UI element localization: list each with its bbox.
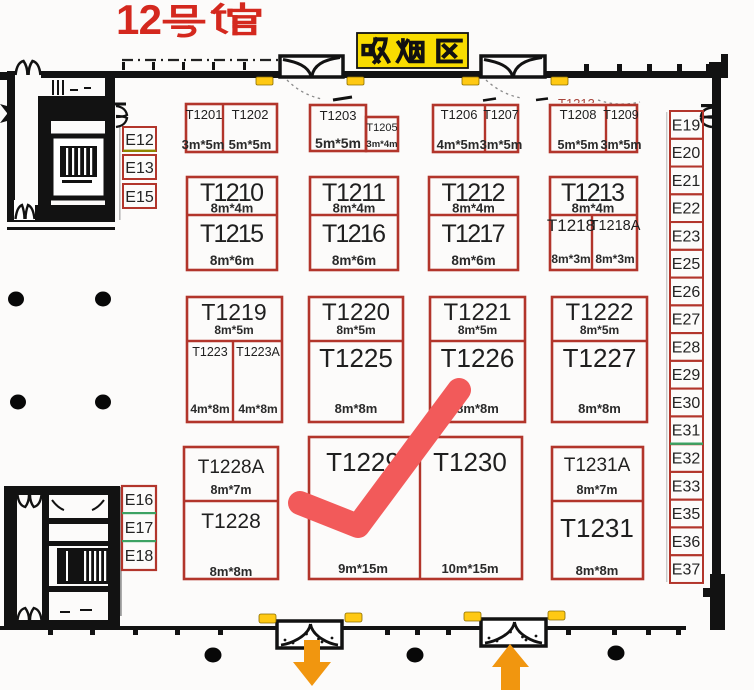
svg-text:8m*5m: 8m*5m — [214, 323, 253, 337]
svg-text:E28: E28 — [672, 340, 701, 357]
svg-text:T1228A: T1228A — [198, 457, 265, 478]
svg-text:3m*5m: 3m*5m — [601, 138, 642, 152]
svg-text:E19: E19 — [672, 117, 701, 134]
svg-text:E13: E13 — [125, 160, 154, 177]
svg-text:3m*4m: 3m*4m — [366, 139, 397, 150]
svg-text:8m*8m: 8m*8m — [576, 563, 619, 578]
svg-text:4m*8m: 4m*8m — [190, 402, 229, 416]
svg-text:10m*15m: 10m*15m — [441, 561, 498, 576]
svg-text:8m*4m: 8m*4m — [333, 201, 376, 216]
svg-text:8m*8m: 8m*8m — [578, 401, 621, 416]
svg-text:8m*3m: 8m*3m — [595, 252, 634, 266]
svg-text:T1223: T1223 — [192, 345, 227, 359]
svg-text:12: 12 — [116, 0, 162, 43]
svg-text:T1218: T1218 — [547, 216, 595, 235]
svg-text:T1205: T1205 — [366, 122, 397, 134]
svg-text:E29: E29 — [672, 367, 701, 384]
svg-text:5m*5m: 5m*5m — [315, 135, 361, 151]
svg-text:4m*5m: 4m*5m — [437, 137, 480, 152]
svg-text:E20: E20 — [672, 145, 701, 162]
svg-text:E35: E35 — [672, 506, 701, 523]
svg-text:E37: E37 — [672, 562, 701, 579]
svg-text:8m*8m: 8m*8m — [335, 401, 378, 416]
svg-text:8m*4m: 8m*4m — [572, 201, 615, 216]
svg-text:8m*5m: 8m*5m — [580, 323, 619, 337]
svg-text:T1208: T1208 — [560, 107, 597, 122]
svg-text:T1203: T1203 — [320, 108, 357, 123]
svg-text:E31: E31 — [672, 423, 701, 440]
svg-text:E26: E26 — [672, 284, 701, 301]
svg-text:E17: E17 — [125, 520, 154, 537]
svg-text:E23: E23 — [672, 228, 701, 245]
svg-text:T1226: T1226 — [441, 343, 515, 373]
svg-text:T1207: T1207 — [483, 108, 518, 122]
svg-text:T1217: T1217 — [442, 220, 506, 248]
svg-text:T1231A: T1231A — [564, 455, 631, 476]
svg-text:E16: E16 — [125, 492, 154, 509]
svg-text:T1218A: T1218A — [590, 218, 641, 234]
svg-text:T1206: T1206 — [441, 107, 478, 122]
svg-text:E32: E32 — [672, 451, 701, 468]
svg-text:T1202: T1202 — [232, 107, 269, 122]
svg-text:8m*4m: 8m*4m — [452, 201, 495, 216]
svg-text:8m*7m: 8m*7m — [577, 483, 618, 497]
svg-text:E22: E22 — [672, 201, 701, 218]
svg-text:T1230: T1230 — [433, 447, 507, 477]
svg-text:E30: E30 — [672, 395, 701, 412]
svg-text:5m*5m: 5m*5m — [558, 138, 599, 152]
svg-text:E15: E15 — [125, 189, 154, 206]
svg-text:T1201: T1201 — [186, 107, 223, 122]
svg-text:T1221: T1221 — [443, 299, 511, 326]
svg-text:T1219: T1219 — [201, 299, 266, 325]
svg-text:E36: E36 — [672, 534, 701, 551]
svg-text:8m*5m: 8m*5m — [458, 323, 497, 337]
svg-text:3m*5m: 3m*5m — [182, 137, 225, 152]
svg-text:T1220: T1220 — [322, 299, 390, 326]
svg-text:8m*6m: 8m*6m — [451, 253, 495, 268]
svg-text:8m*8m: 8m*8m — [210, 564, 253, 579]
svg-text:E25: E25 — [672, 256, 701, 273]
svg-text:9m*15m: 9m*15m — [338, 561, 388, 576]
svg-text:T1225: T1225 — [319, 343, 393, 373]
svg-text:E33: E33 — [672, 478, 701, 495]
svg-text:T1216: T1216 — [322, 220, 386, 248]
svg-text:8m*6m: 8m*6m — [210, 253, 254, 268]
svg-text:T1228: T1228 — [201, 510, 261, 533]
svg-text:3m*5m: 3m*5m — [480, 137, 523, 152]
svg-text:E21: E21 — [672, 173, 701, 190]
svg-text:T1223A: T1223A — [236, 345, 280, 359]
svg-text:E27: E27 — [672, 312, 701, 329]
svg-text:8m*6m: 8m*6m — [332, 253, 376, 268]
svg-text:4m*8m: 4m*8m — [238, 402, 277, 416]
svg-text:T1215: T1215 — [200, 220, 264, 248]
svg-text:8m*3m: 8m*3m — [551, 252, 590, 266]
svg-text:8m*5m: 8m*5m — [336, 323, 375, 337]
svg-text:8m*7m: 8m*7m — [211, 483, 252, 497]
svg-text:T1231: T1231 — [560, 513, 634, 543]
svg-text:8m*4m: 8m*4m — [211, 201, 254, 216]
svg-text:E18: E18 — [125, 548, 154, 565]
svg-text:5m*5m: 5m*5m — [229, 137, 272, 152]
svg-text:T1222: T1222 — [565, 299, 633, 326]
svg-text:T1209: T1209 — [603, 108, 638, 122]
svg-text:T1227: T1227 — [563, 343, 637, 373]
svg-text:E12: E12 — [125, 132, 154, 149]
